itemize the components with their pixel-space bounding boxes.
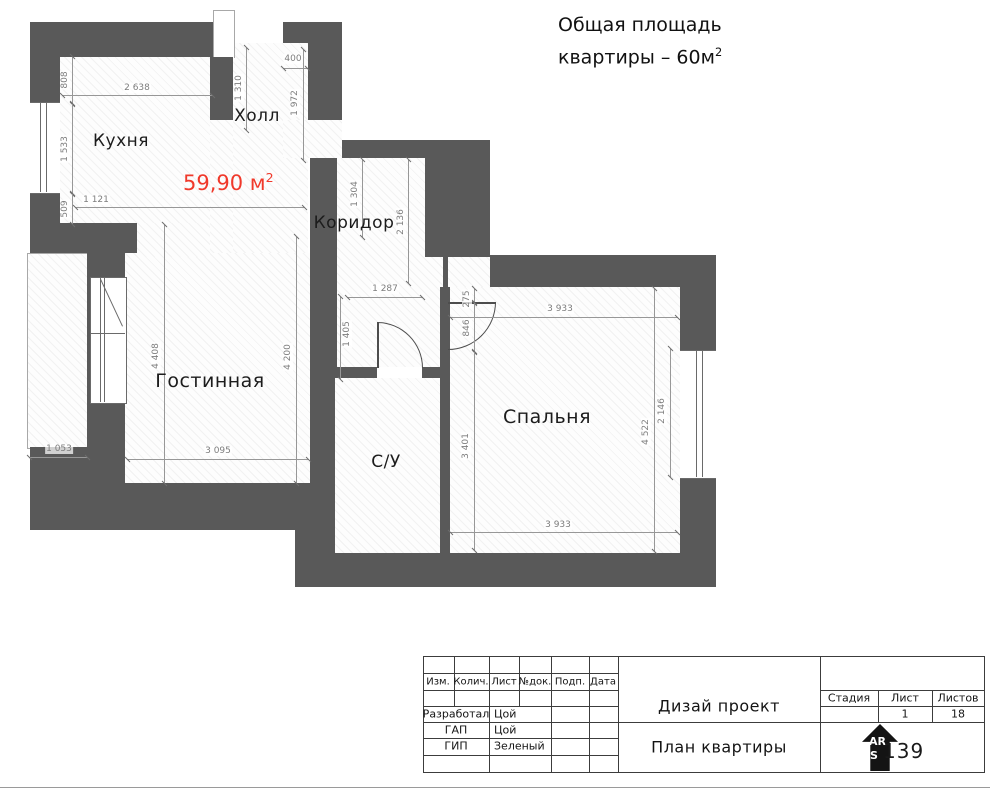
role-gap: ГАП bbox=[445, 724, 468, 737]
logo-number: 139 bbox=[883, 739, 924, 763]
title-block: Изм. Колич. Лист №док. Подп. Дата Разраб… bbox=[0, 0, 990, 790]
col-kolich: Колич. bbox=[453, 677, 488, 688]
stage-label: Стадия bbox=[828, 692, 870, 705]
role-developer: Разработал bbox=[423, 708, 490, 721]
sheet-title: План квартиры bbox=[651, 738, 787, 757]
logo-text-mid: S bbox=[870, 750, 878, 761]
project-title: Дизай проект bbox=[658, 697, 780, 716]
role-gip: ГИП bbox=[444, 740, 467, 753]
table-line bbox=[423, 690, 618, 691]
name-gip: Зеленый bbox=[494, 740, 545, 753]
table-line bbox=[820, 656, 821, 773]
col-izm: Изм. bbox=[426, 677, 450, 688]
col-list: Лист bbox=[491, 677, 516, 688]
sheets-label: Листов bbox=[937, 692, 978, 705]
name-gap: Цой bbox=[494, 724, 516, 737]
table-line bbox=[423, 755, 618, 756]
table-line bbox=[423, 673, 618, 674]
sheet-label: Лист bbox=[891, 692, 919, 705]
sheet-value: 1 bbox=[902, 708, 909, 721]
sheets-value: 18 bbox=[951, 708, 965, 721]
col-podp: Подп. bbox=[555, 677, 585, 688]
drawing-sheet: Общая площадь квартиры – 60м2 bbox=[0, 0, 990, 790]
col-data: Дата bbox=[590, 677, 616, 688]
col-ndok: №док. bbox=[519, 677, 552, 688]
name-developer: Цой bbox=[494, 708, 516, 721]
sheet-frame-bottom-line bbox=[0, 787, 990, 788]
table-line bbox=[618, 656, 619, 773]
